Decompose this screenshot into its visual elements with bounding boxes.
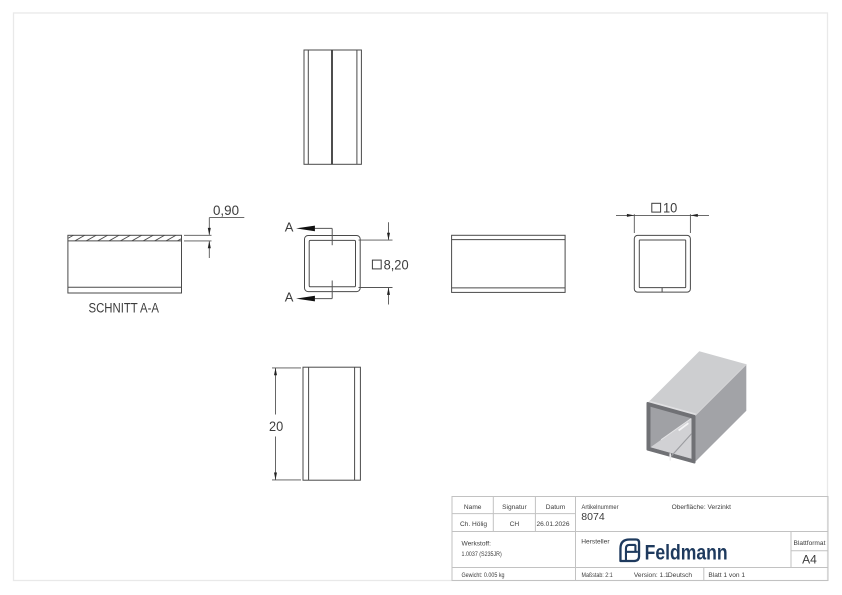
- svg-text:Oberfläche: Verzinkt: Oberfläche: Verzinkt: [672, 504, 732, 511]
- svg-text:SCHNITT A-A: SCHNITT A-A: [89, 301, 160, 316]
- svg-text:A: A: [285, 290, 294, 305]
- svg-text:Datum: Datum: [546, 504, 566, 511]
- svg-text:8,20: 8,20: [384, 257, 409, 273]
- svg-text:Version: 1.1: Version: 1.1: [634, 572, 669, 579]
- svg-text:A4: A4: [802, 552, 817, 566]
- svg-text:Signatur: Signatur: [502, 504, 527, 511]
- svg-text:8074: 8074: [581, 511, 605, 523]
- svg-text:Hersteller: Hersteller: [581, 538, 610, 545]
- svg-text:Werkstoff:: Werkstoff:: [462, 541, 492, 548]
- svg-text:Ch. Hölig: Ch. Hölig: [460, 521, 487, 528]
- svg-text:26.01.2026: 26.01.2026: [536, 521, 569, 528]
- svg-text:20: 20: [269, 418, 283, 434]
- svg-text:Maßstab: 2:1: Maßstab: 2:1: [582, 572, 613, 579]
- svg-text:Name: Name: [464, 504, 482, 511]
- svg-text:1.0037 (S235JR): 1.0037 (S235JR): [462, 551, 502, 558]
- svg-text:Feldmann: Feldmann: [645, 541, 728, 564]
- svg-text:A: A: [285, 219, 294, 234]
- svg-text:Artikelnummer: Artikelnummer: [582, 504, 620, 511]
- svg-text:Blatt 1 von 1: Blatt 1 von 1: [708, 572, 745, 579]
- svg-text:10: 10: [663, 199, 677, 215]
- svg-text:0,90: 0,90: [213, 202, 239, 218]
- svg-text:Deutsch: Deutsch: [668, 572, 693, 579]
- svg-text:Gewicht: 0.005 kg: Gewicht: 0.005 kg: [462, 572, 505, 579]
- svg-text:Blattformat: Blattformat: [794, 540, 826, 547]
- svg-text:CH: CH: [510, 521, 520, 528]
